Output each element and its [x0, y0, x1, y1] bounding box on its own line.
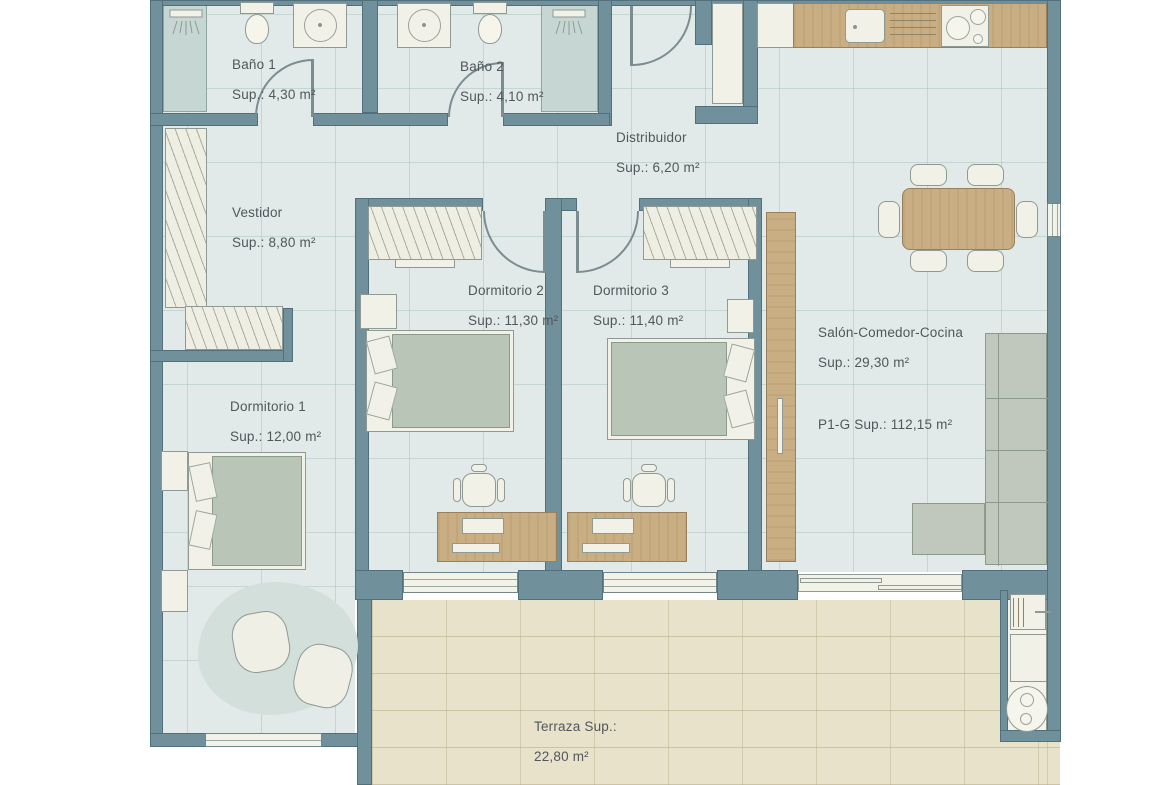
kitchen-sink: [845, 9, 885, 43]
room-name: Dormitorio 2: [468, 276, 558, 306]
wardrobe-dorm3-sill: [670, 259, 730, 268]
dining-chair-4: [967, 250, 1004, 272]
label-dormitorio3: Dormitorio 3 Sup.: 11,40 m²: [593, 276, 683, 336]
room-name: Dormitorio 1: [230, 392, 321, 422]
bed-dorm3-mattress: [611, 342, 727, 436]
wall-bano-divider: [362, 0, 378, 113]
sliding-wood-door-handle: [777, 398, 783, 454]
room-area: Sup.: 12,00 m²: [230, 422, 321, 452]
dining-chair-5: [878, 201, 900, 238]
room-area: Sup.: 11,40 m²: [593, 306, 683, 336]
toilet-bano1-bowl: [245, 14, 269, 44]
nightstand-dorm1-top: [161, 451, 188, 491]
room-area: Sup.: 29,30 m²: [818, 348, 963, 378]
wall-closet-bottom: [695, 106, 758, 124]
terrace-counter: [1010, 634, 1047, 682]
wall-bano2-right: [598, 0, 612, 126]
cooktop: [941, 5, 989, 47]
shower-icon-bano2: [549, 8, 589, 43]
terrace-round-unit: [1006, 686, 1048, 732]
label-bano2: Baño 2 Sup.: 4,10 m²: [460, 52, 544, 112]
wall-terrace-unit-bottom: [1000, 730, 1061, 742]
washbasin-bano2: [397, 3, 451, 48]
sliding-glass-pane-1: [800, 578, 882, 583]
room-name: Terraza Sup.:: [534, 712, 617, 742]
floor-plan: Baño 1 Sup.: 4,30 m² Baño 2 Sup.: 4,10 m…: [0, 0, 1170, 785]
dining-table: [902, 188, 1015, 250]
room-name: Baño 1: [232, 50, 316, 80]
kitchen-sink-drainer: [890, 13, 936, 40]
window-salon-east: [1047, 203, 1061, 237]
wall-south-b: [518, 570, 603, 600]
sliding-glass-pane-2: [878, 585, 962, 590]
sofa-vertical: [985, 333, 1047, 565]
label-salon: Salón-Comedor-Cocina Sup.: 29,30 m²: [818, 318, 963, 378]
toilet-bano1-tank: [240, 2, 274, 14]
room-area: Sup.: 6,20 m²: [616, 153, 700, 183]
toilet-bano2-bowl: [478, 14, 502, 44]
wardrobe-dorm2: [368, 206, 482, 260]
wall-bath-bottom-b: [313, 113, 448, 126]
label-terraza: Terraza Sup.: 22,80 m²: [534, 712, 617, 772]
wall-south-a: [355, 570, 403, 600]
nightstand-dorm1-bottom: [161, 570, 188, 612]
wall-bath-bottom-a: [150, 113, 258, 126]
dining-chair-1: [910, 164, 947, 186]
window-dorm3: [603, 572, 717, 593]
washbasin-bano1: [293, 3, 347, 48]
desk-dorm2-monitor: [462, 518, 504, 534]
wall-vestidor-dorm1: [150, 350, 293, 362]
room-area: Sup.: 11,30 m²: [468, 306, 558, 336]
window-dorm2: [403, 572, 518, 593]
wall-right-outer: [1047, 0, 1061, 742]
wall-vestidor-stub: [283, 308, 293, 362]
label-vestidor: Vestidor Sup.: 8,80 m²: [232, 198, 316, 258]
terrace-floor: [372, 600, 1047, 785]
label-plan-total: P1-G Sup.: 112,15 m²: [818, 410, 952, 440]
room-area: 22,80 m²: [534, 742, 617, 772]
wall-entry-stub: [695, 0, 712, 45]
room-name: Dormitorio 3: [593, 276, 683, 306]
wall-terrace-left: [357, 588, 372, 785]
nightstand-dorm2: [360, 294, 397, 329]
wardrobe-vestidor-bottom: [185, 306, 283, 350]
label-distribuidor: Distribuidor Sup.: 6,20 m²: [616, 123, 700, 183]
sofa-chaise: [912, 503, 985, 555]
wall-bath-bottom-c: [503, 113, 610, 126]
window-dorm1: [205, 733, 322, 747]
wall-south-c: [717, 570, 798, 600]
room-area: Sup.: 8,80 m²: [232, 228, 316, 258]
nightstand-dorm3: [727, 299, 754, 333]
sliding-wood-door: [766, 212, 796, 562]
room-name: Distribuidor: [616, 123, 700, 153]
office-chair-dorm2: [453, 464, 505, 514]
dining-chair-6: [1016, 201, 1038, 238]
room-area: Sup.: 4,10 m²: [460, 82, 544, 112]
shower-icon-bano1: [166, 8, 206, 43]
room-name: Salón-Comedor-Cocina: [818, 318, 963, 348]
desk-dorm2-keyboard: [452, 543, 500, 553]
label-dormitorio2: Dormitorio 2 Sup.: 11,30 m²: [468, 276, 558, 336]
terrace-floor-edge: [1047, 742, 1060, 785]
desk-dorm3-monitor: [592, 518, 634, 534]
toilet-bano2-tank: [473, 2, 507, 14]
wardrobe-vestidor-left: [165, 128, 207, 308]
bed-dorm2-mattress: [392, 334, 510, 428]
room-area: Sup.: 4,30 m²: [232, 80, 316, 110]
wardrobe-dorm3: [643, 206, 757, 260]
terrace-sink: [1010, 594, 1046, 630]
fridge: [757, 3, 794, 48]
office-chair-dorm3: [623, 464, 675, 514]
dining-chair-3: [910, 250, 947, 272]
wardrobe-dorm2-sill: [395, 259, 455, 268]
bed-dorm1-mattress: [212, 456, 302, 566]
total-area: P1-G Sup.: 112,15 m²: [818, 410, 952, 440]
room-name: Vestidor: [232, 198, 316, 228]
room-name: Baño 2: [460, 52, 544, 82]
dining-chair-2: [967, 164, 1004, 186]
entry-closet: [712, 3, 743, 104]
desk-dorm3-keyboard: [582, 543, 630, 553]
label-bano1: Baño 1 Sup.: 4,30 m²: [232, 50, 316, 110]
label-dormitorio1: Dormitorio 1 Sup.: 12,00 m²: [230, 392, 321, 452]
